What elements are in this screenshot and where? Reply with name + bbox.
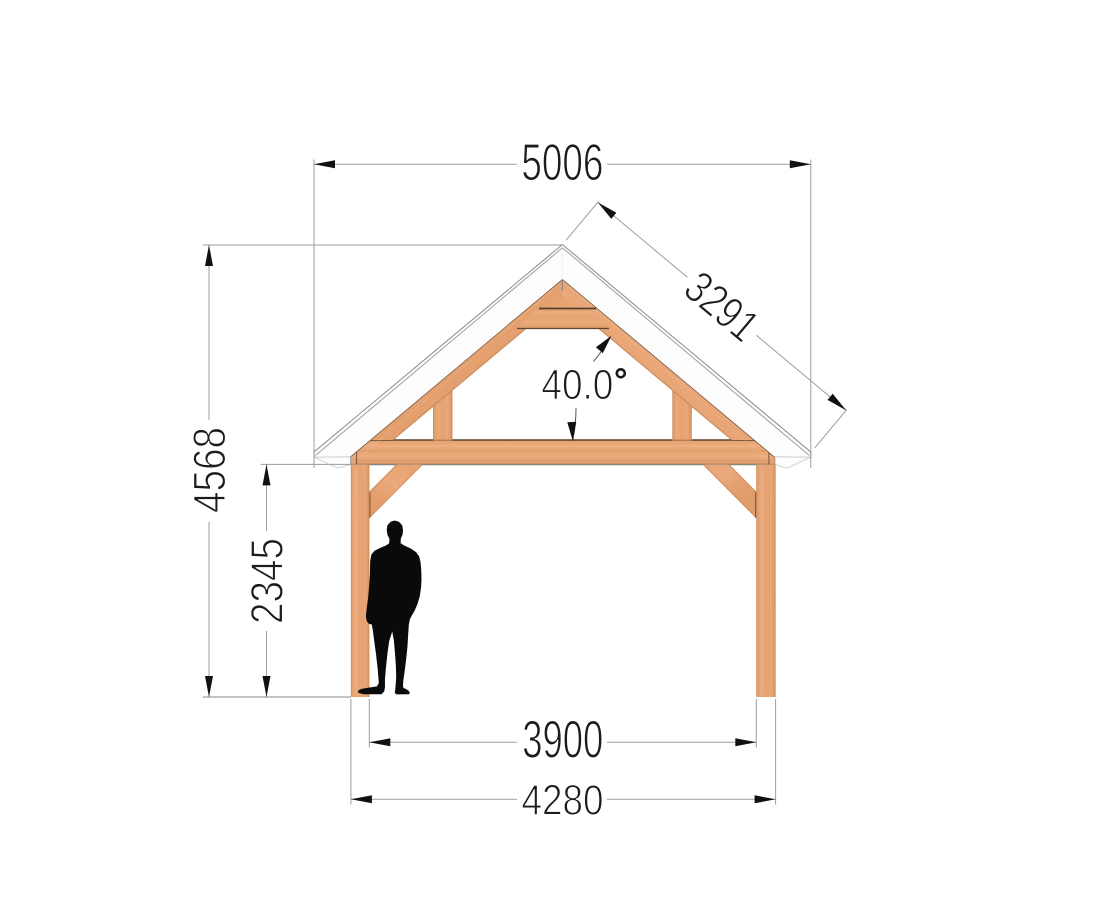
svg-text:5006: 5006	[521, 134, 603, 192]
svg-text:40.0: 40.0	[541, 361, 613, 409]
svg-text:2345: 2345	[241, 538, 292, 624]
svg-text:3900: 3900	[522, 711, 603, 770]
svg-text:4568: 4568	[184, 427, 235, 513]
svg-text:4280: 4280	[522, 776, 604, 824]
